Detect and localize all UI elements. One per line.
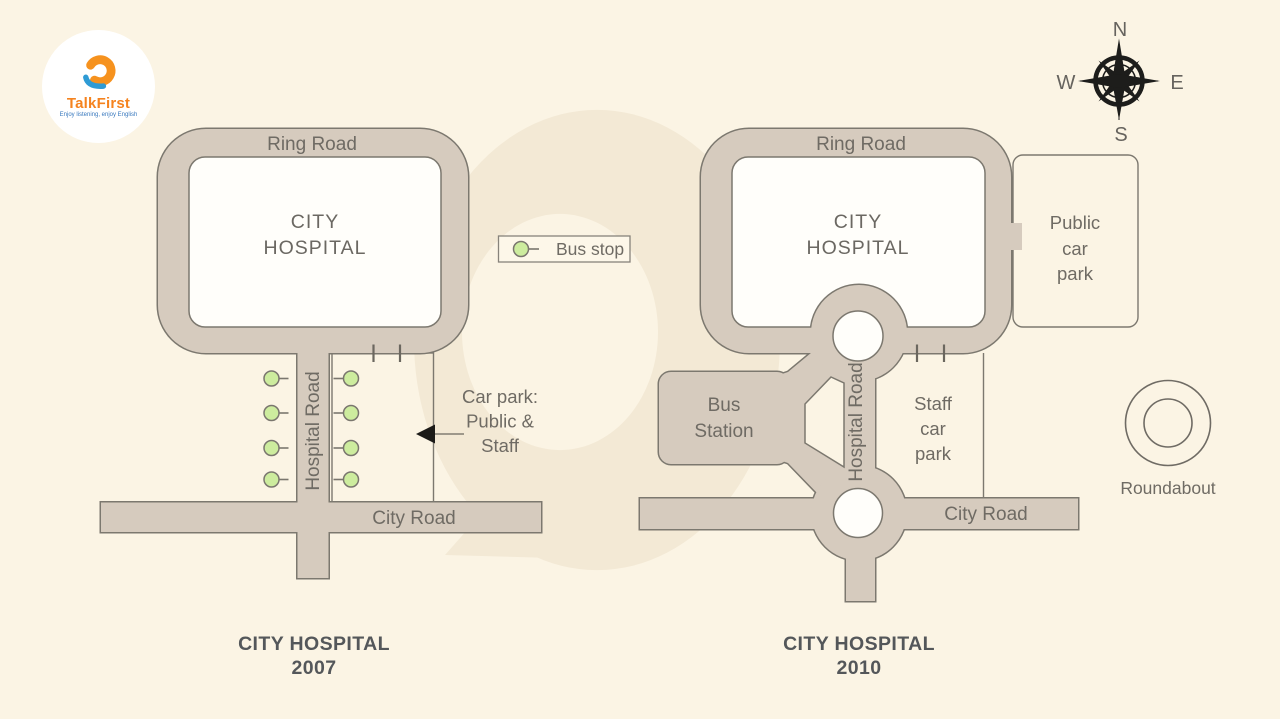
car-park-note-line2: Public &: [466, 411, 535, 432]
map-title-2007-line2: 2007: [292, 657, 337, 679]
compass-rose-icon: N E S W: [1057, 19, 1184, 146]
hospital-name-2010-line2: HOSPITAL: [807, 237, 910, 259]
hospital-road-label-2010: Hospital Road: [846, 362, 867, 481]
compass-south-label: S: [1114, 124, 1127, 146]
hospital-maps-diagram: Ring Road CITY HOSPITAL Hospital Road Ci…: [0, 0, 1280, 719]
bus-stop-icon: [334, 371, 359, 386]
staff-car-park-label-line2: car: [920, 418, 946, 439]
brand-tagline: Enjoy listening, enjoy English: [60, 111, 138, 119]
hospital-road-label-2007: Hospital Road: [303, 371, 324, 490]
bus-stop-legend: Bus stop: [499, 236, 631, 262]
map-title-2010-line1: CITY HOSPITAL: [783, 633, 935, 655]
ring-road-label-2007: Ring Road: [267, 134, 357, 155]
brand-name: TalkFirst: [67, 96, 130, 111]
city-road-label-2010: City Road: [944, 504, 1027, 525]
south-roundabout-island: [834, 489, 883, 538]
bus-stop-icon: [264, 441, 289, 456]
bus-stop-icon: [264, 472, 289, 487]
bus-station-label-line2: Station: [694, 421, 753, 442]
city-road-label-2007: City Road: [372, 508, 455, 529]
bus-stop-icon: [334, 406, 359, 421]
compass-east-label: E: [1170, 72, 1183, 94]
hospital-name-2010-line1: CITY: [834, 211, 882, 233]
roundabout-legend-icon: [1126, 381, 1211, 466]
map-title-2007-line1: CITY HOSPITAL: [238, 633, 390, 655]
bus-stop-icon: [334, 472, 359, 487]
talkfirst-logo-icon: [77, 54, 121, 94]
compass-north-label: N: [1113, 19, 1127, 41]
roundabout-legend-label: Roundabout: [1120, 478, 1215, 498]
bus-stop-icon: [334, 441, 359, 456]
public-car-park-label-line2: car: [1062, 238, 1088, 259]
north-roundabout-island: [833, 311, 883, 361]
bus-station-label-line1: Bus: [708, 395, 741, 416]
car-park-arrow-icon: [416, 425, 435, 444]
car-park-note-line3: Staff: [481, 435, 520, 456]
bus-stop-icon: [264, 406, 289, 421]
hospital-name-2007-line1: CITY: [291, 211, 339, 233]
ring-road-label-2010: Ring Road: [816, 134, 906, 155]
bus-stop-legend-label: Bus stop: [556, 239, 624, 259]
hospital-name-2007-line2: HOSPITAL: [264, 237, 367, 259]
talkfirst-logo: TalkFirst Enjoy listening, enjoy English: [42, 30, 155, 143]
bus-stop-icon: [264, 371, 289, 386]
public-car-park-entrance: [1002, 223, 1022, 250]
public-car-park-label-line3: park: [1057, 263, 1094, 284]
map-2010: Ring Road CITY HOSPITAL Hospital Road Ci…: [640, 129, 1138, 679]
compass-west-label: W: [1057, 72, 1076, 94]
staff-car-park-label-line1: Staff: [914, 393, 953, 414]
public-car-park-label-line1: Public: [1050, 212, 1100, 233]
car-park-note-line1: Car park:: [462, 386, 538, 407]
map-title-2010-line2: 2010: [837, 657, 882, 679]
staff-car-park-label-line3: park: [915, 443, 952, 464]
roundabout-legend: Roundabout: [1120, 381, 1215, 499]
